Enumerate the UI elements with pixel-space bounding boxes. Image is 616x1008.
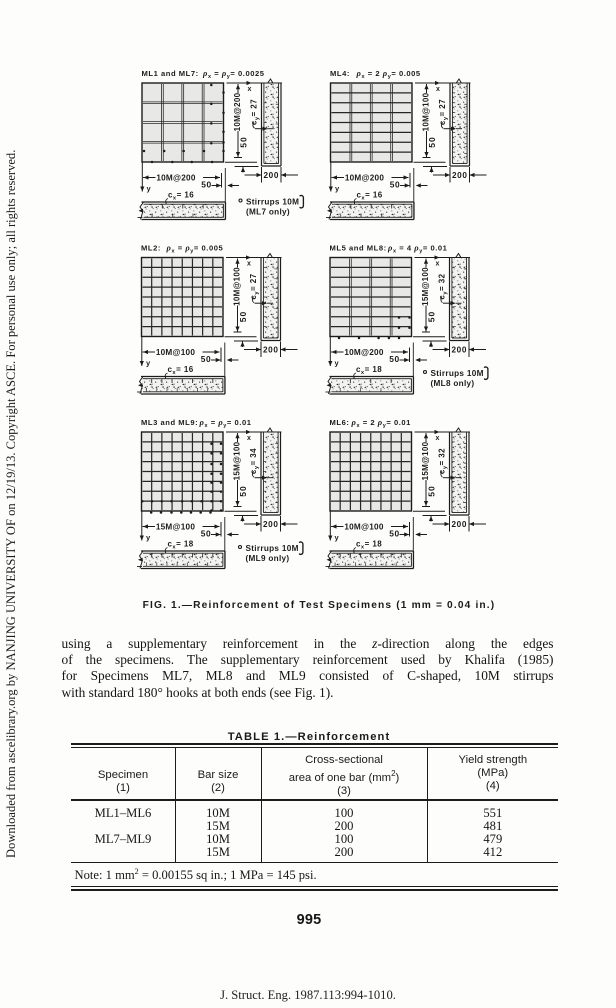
svg-text:50: 50 — [427, 311, 437, 322]
svg-text:cx= 16: cx= 16 — [168, 191, 194, 202]
svg-text:50: 50 — [238, 311, 248, 322]
svg-text:10M@100: 10M@100 — [422, 92, 431, 131]
svg-text:200: 200 — [452, 171, 467, 180]
svg-text:cx= 18: cx= 18 — [168, 540, 194, 551]
svg-text:15M@100: 15M@100 — [156, 523, 196, 532]
svg-text:y: y — [147, 184, 152, 193]
svg-text:ML4:: ML4: — [330, 69, 350, 78]
svg-text:Stirrups 10M: Stirrups 10M — [246, 198, 299, 207]
svg-text:50: 50 — [389, 529, 400, 539]
svg-text:Stirrups 10M: Stirrups 10M — [431, 369, 484, 378]
svg-text:10M@200: 10M@200 — [156, 174, 196, 183]
svg-text:ML2:: ML2: — [141, 244, 161, 253]
svg-text:50: 50 — [389, 354, 400, 364]
svg-text:10M@100: 10M@100 — [233, 267, 242, 306]
svg-text:50: 50 — [427, 136, 437, 147]
svg-text:y: y — [335, 533, 340, 542]
svg-text:15M@100: 15M@100 — [421, 441, 430, 480]
svg-text:cx= 18: cx= 18 — [356, 365, 382, 376]
svg-text:ρx = 2 ρy= 0.01: ρx = 2 ρy= 0.01 — [351, 417, 412, 429]
svg-text:50: 50 — [390, 180, 401, 190]
svg-text:x: x — [248, 86, 252, 93]
svg-text:x: x — [436, 86, 440, 93]
svg-text:15M@100: 15M@100 — [421, 267, 430, 306]
svg-text:Stirrups 10M: Stirrups 10M — [246, 544, 299, 553]
svg-text:ρx = ρy= 0.0025: ρx = ρy= 0.0025 — [202, 68, 265, 80]
svg-text:10M@200: 10M@200 — [344, 348, 384, 357]
svg-text:x: x — [436, 435, 440, 442]
svg-text:ρx = 4 ρy= 0.01: ρx = 4 ρy= 0.01 — [387, 243, 448, 255]
svg-text:ML1 and ML7:: ML1 and ML7: — [142, 69, 199, 78]
svg-text:cx= 16: cx= 16 — [168, 365, 194, 376]
svg-text:200: 200 — [452, 520, 467, 529]
svg-text:cy= 34: cy= 34 — [249, 448, 260, 474]
svg-text:cy= 27: cy= 27 — [438, 99, 449, 125]
svg-text:ρx = ρy= 0.01: ρx = ρy= 0.01 — [199, 417, 252, 429]
svg-text:ML3 and ML9:: ML3 and ML9: — [141, 418, 198, 427]
svg-text:y: y — [146, 533, 151, 542]
svg-text:50: 50 — [238, 485, 248, 496]
svg-text:ML6:: ML6: — [330, 418, 350, 427]
svg-text:10M@200: 10M@200 — [345, 174, 385, 183]
svg-text:10M@100: 10M@100 — [156, 348, 196, 357]
svg-text:cx= 18: cx= 18 — [356, 540, 382, 551]
svg-text:200: 200 — [264, 171, 279, 180]
svg-text:200: 200 — [452, 346, 467, 355]
svg-text:50: 50 — [427, 485, 437, 496]
svg-text:y: y — [335, 184, 340, 193]
svg-text:50: 50 — [201, 180, 212, 190]
svg-text:200: 200 — [263, 520, 278, 529]
svg-text:cx= 16: cx= 16 — [357, 191, 383, 202]
svg-text:x: x — [436, 261, 440, 268]
svg-text:(ML8 only): (ML8 only) — [431, 379, 475, 388]
svg-text:50: 50 — [201, 529, 212, 539]
svg-text:ML5 and ML8:: ML5 and ML8: — [330, 244, 387, 253]
svg-text:(ML9 only): (ML9 only) — [246, 554, 290, 563]
svg-text:cy= 27: cy= 27 — [249, 273, 260, 299]
svg-text:x: x — [247, 435, 251, 442]
svg-text:cy= 32: cy= 32 — [438, 273, 449, 299]
svg-text:10M@100: 10M@100 — [344, 523, 384, 532]
svg-text:ρx = 2 ρy= 0.005: ρx = 2 ρy= 0.005 — [356, 68, 421, 80]
svg-text:y: y — [146, 359, 151, 368]
svg-text:10M@200: 10M@200 — [233, 92, 242, 131]
svg-text:15M@100: 15M@100 — [233, 441, 242, 480]
svg-text:cy= 32: cy= 32 — [438, 448, 449, 474]
svg-text:y: y — [335, 359, 340, 368]
svg-text:50: 50 — [239, 136, 249, 147]
svg-text:cy= 27: cy= 27 — [250, 99, 261, 125]
svg-text:50: 50 — [201, 354, 212, 364]
svg-text:200: 200 — [263, 346, 278, 355]
svg-text:x: x — [247, 261, 251, 268]
svg-text:ρx = ρy= 0.005: ρx = ρy= 0.005 — [166, 243, 224, 255]
svg-text:(ML7 only): (ML7 only) — [246, 208, 290, 217]
